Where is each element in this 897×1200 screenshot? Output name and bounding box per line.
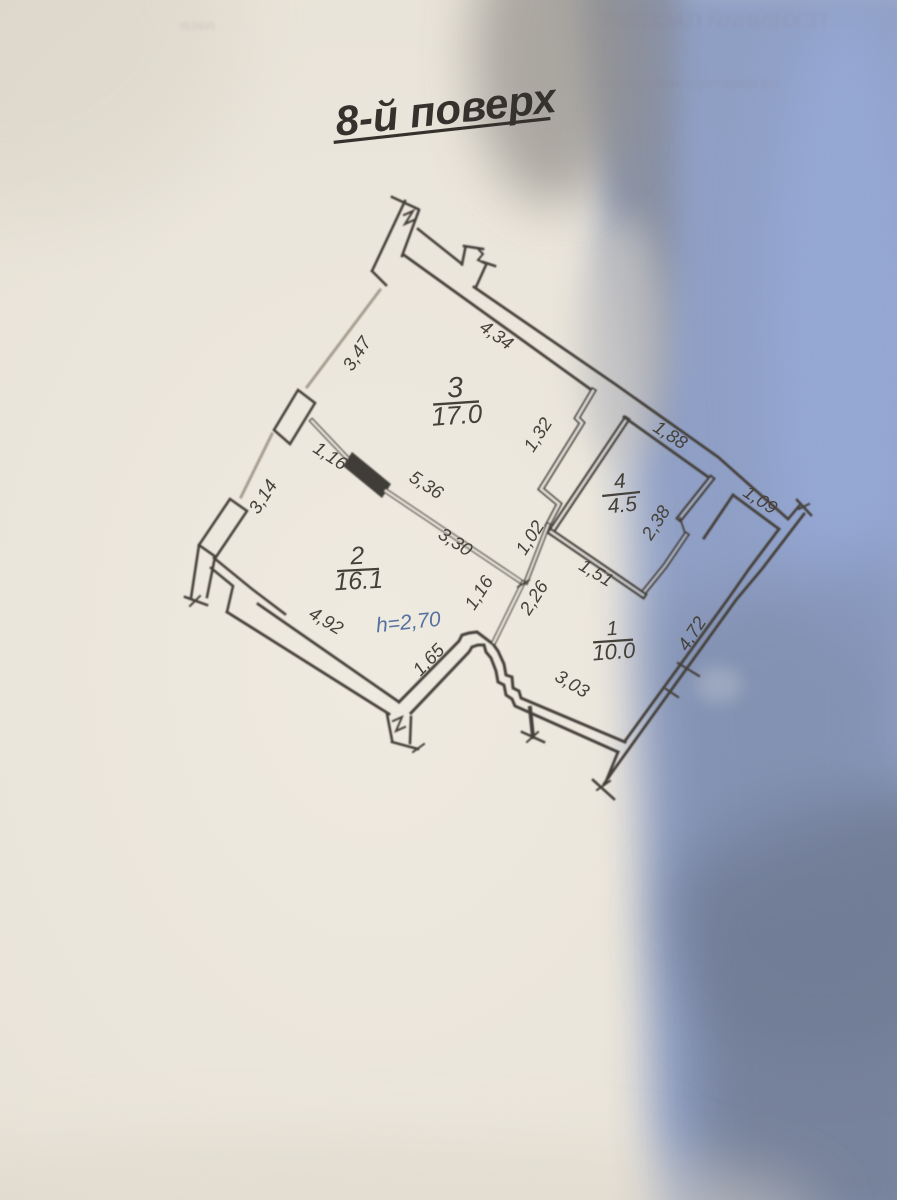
svg-text:1: 1 [606, 618, 619, 641]
svg-text:на квартиру житлового: на квартиру житлового [596, 75, 780, 92]
svg-text:4: 4 [613, 470, 627, 494]
svg-text:ТЕХНІЧНИЙ ПАСПОРТ: ТЕХНІЧНИЙ ПАСПОРТ [599, 9, 830, 33]
svg-text:пасп: пасп [180, 17, 215, 34]
svg-text:17.0: 17.0 [431, 398, 484, 431]
svg-text:4.5: 4.5 [607, 492, 639, 518]
svg-text:16.1: 16.1 [334, 566, 384, 597]
svg-text:10.0: 10.0 [592, 637, 637, 665]
